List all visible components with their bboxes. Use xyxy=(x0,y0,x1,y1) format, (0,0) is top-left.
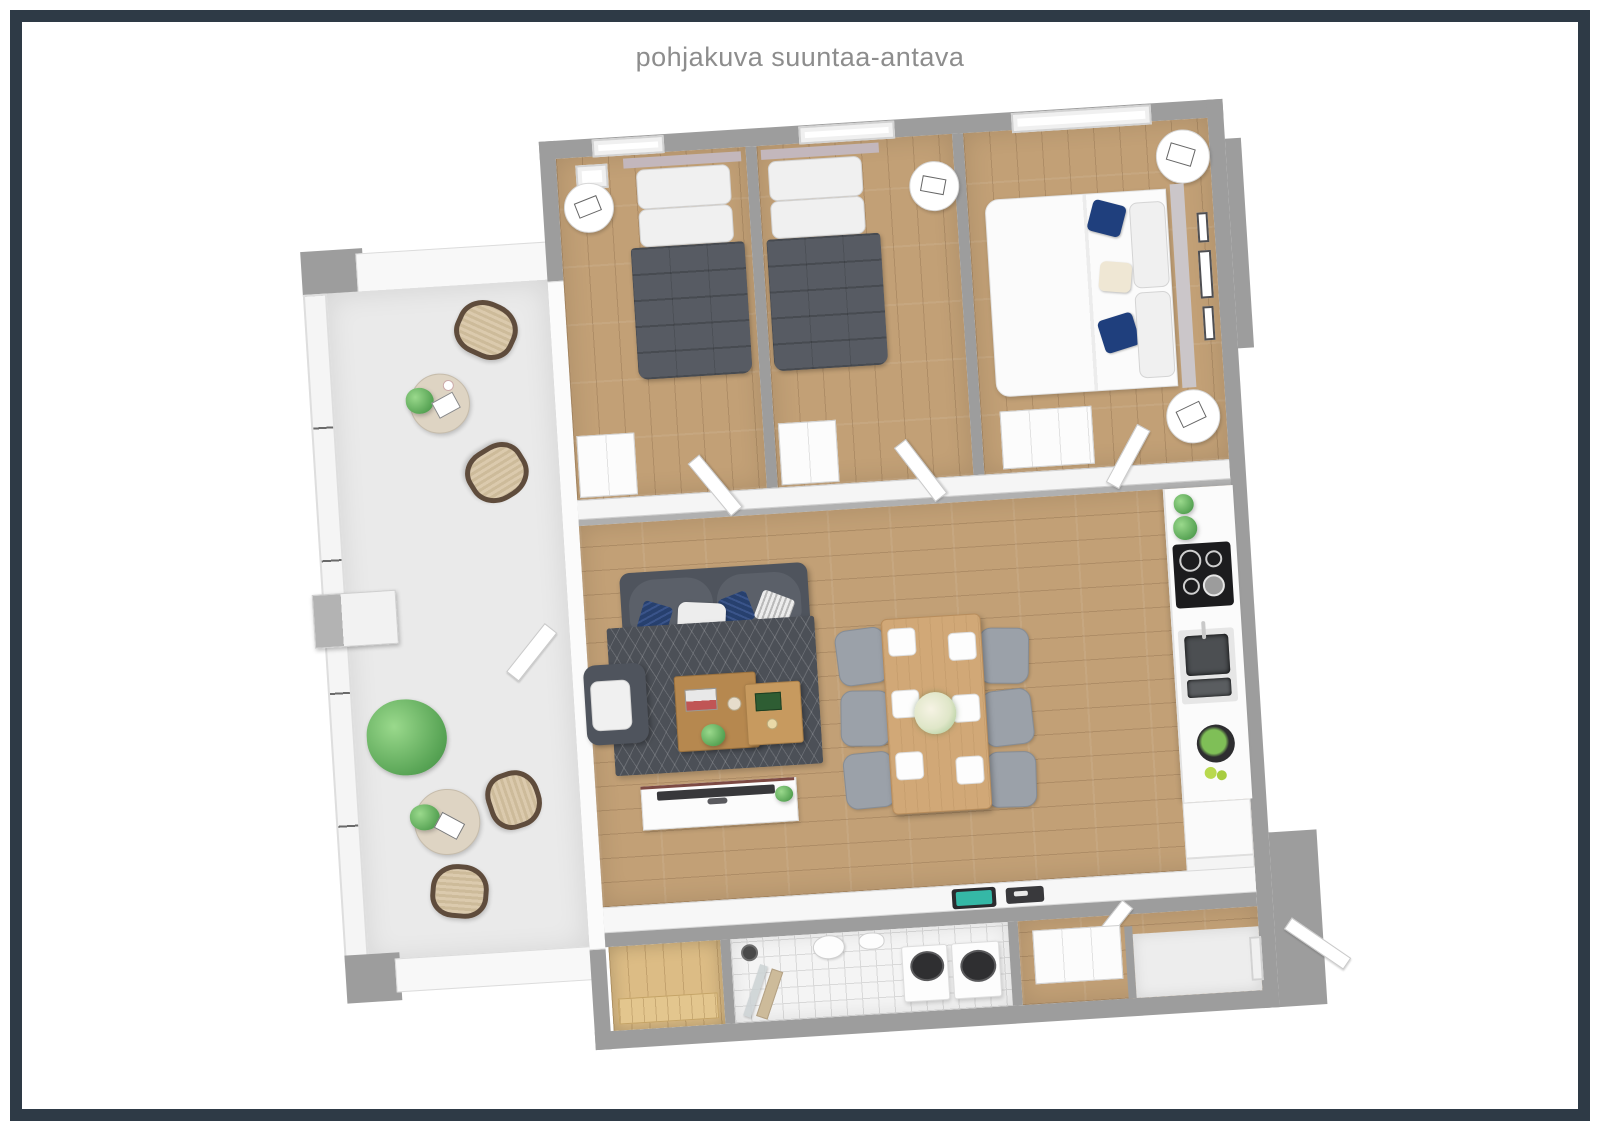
page-border-frame: pohjakuva suuntaa-antava xyxy=(10,10,1590,1121)
balcony-chair-lower-b xyxy=(429,862,491,920)
master-wall-art-3 xyxy=(1202,306,1215,341)
kitchen-tall-cabinet xyxy=(1182,798,1253,858)
bed-2-pillow-bottom xyxy=(770,196,866,240)
balcony-bottom-end-wall xyxy=(344,952,402,1003)
tray-remote xyxy=(1014,891,1028,897)
dining-chair-left-2 xyxy=(840,690,891,747)
master-wall-art-1 xyxy=(1196,212,1209,243)
kitchen-sink-basin-small xyxy=(1187,677,1232,698)
bed-2-duvet xyxy=(766,233,888,372)
kitchen-sink-basin xyxy=(1184,634,1230,677)
place-setting-3 xyxy=(895,751,925,781)
bed-1-pillow-bottom xyxy=(638,204,734,248)
master-bed-pillow-cream xyxy=(1098,261,1132,293)
bedroom-2-wardrobe xyxy=(778,420,840,486)
master-bed-pillow-white-top xyxy=(1129,201,1170,289)
entry-vestibule-floor xyxy=(1133,926,1263,998)
balcony-planter-box xyxy=(312,590,399,649)
bedroom-1-wardrobe xyxy=(576,432,638,498)
bed-1-duvet xyxy=(631,241,753,380)
floor-plan xyxy=(294,99,1285,1071)
outer-wall-entry-step xyxy=(1269,829,1328,1007)
cooktop xyxy=(1172,541,1234,609)
place-setting-1 xyxy=(887,627,917,657)
coffee-table-small xyxy=(744,681,804,746)
armchair-pillows xyxy=(590,679,633,731)
dining-chair-right-3 xyxy=(986,751,1038,808)
tv-base xyxy=(707,797,727,804)
tablet-screen xyxy=(956,890,993,906)
coffee-table-book-green xyxy=(755,692,782,712)
hallway-wardrobe xyxy=(1032,925,1123,984)
dining-chair-right-1 xyxy=(979,628,1029,684)
place-setting-6 xyxy=(955,755,985,785)
master-wardrobe xyxy=(1000,406,1095,470)
page-title: pohjakuva suuntaa-antava xyxy=(22,42,1578,73)
master-bed-pillow-white-bottom xyxy=(1134,291,1175,379)
coffee-table-book-red xyxy=(684,688,717,712)
bed-2-pillow-top xyxy=(767,156,863,202)
place-setting-4 xyxy=(947,631,977,661)
bed-1-pillow-top xyxy=(636,164,732,210)
